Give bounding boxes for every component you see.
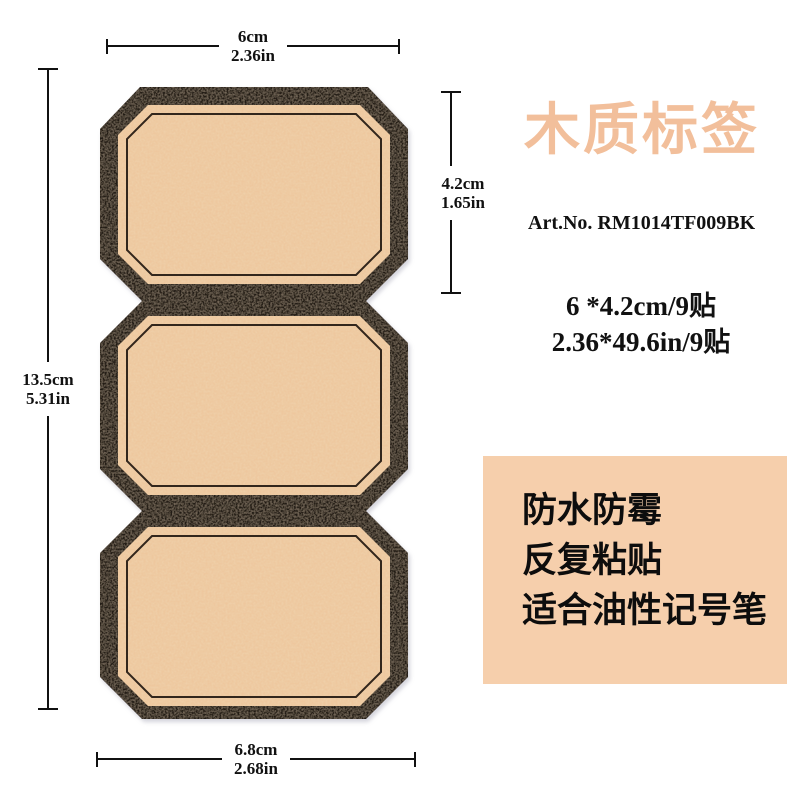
dimension-line [47, 416, 49, 708]
label-3-cork-face [118, 527, 390, 706]
dimension-line [47, 70, 49, 362]
dimension-right-cm: 4.2cm [441, 174, 485, 193]
feature-waterproof: 防水防霉 [522, 486, 787, 536]
dimension-bottom-in: 2.68in [234, 759, 278, 778]
feature-box: 防水防霉 反复粘贴 适合油性记号笔 [483, 456, 787, 684]
dimension-line [98, 758, 222, 760]
dimension-left-cm: 13.5cm [22, 370, 73, 389]
dimension-top-width: 6cm 2.36in [106, 26, 400, 66]
dimension-end-tick [441, 292, 461, 294]
size-spec-cm: 6 *4.2cm/9贴 [510, 288, 772, 324]
dimension-line [450, 93, 452, 166]
dimension-end-tick [414, 752, 416, 767]
dimension-line [450, 220, 452, 293]
dimension-right-label: 4.2cm 1.65in [441, 174, 485, 212]
dimension-right-height: 4.2cm 1.65in [421, 91, 481, 294]
dimension-bottom-cm: 6.8cm [234, 740, 278, 759]
cork-label-sheet-image [98, 87, 410, 720]
dimension-end-tick [398, 39, 400, 54]
article-number: Art.No. RM1014TF009BK [528, 212, 758, 235]
label-2-cork-face [118, 316, 390, 495]
dimension-left-in: 5.31in [22, 389, 73, 408]
dimension-top-label: 6cm 2.36in [231, 27, 275, 65]
feature-marker-compatible: 适合油性记号笔 [522, 586, 787, 636]
dimension-left-height: 13.5cm 5.31in [19, 68, 77, 710]
dimension-right-in: 1.65in [441, 193, 485, 212]
dimension-bottom-label: 6.8cm 2.68in [234, 740, 278, 778]
size-specs: 6 *4.2cm/9贴 2.36*49.6in/9贴 [510, 288, 772, 360]
dimension-line [108, 45, 219, 47]
dimension-bottom-width: 6.8cm 2.68in [96, 739, 416, 779]
product-title: 木质标签 [524, 100, 774, 162]
dimension-top-cm: 6cm [231, 27, 275, 46]
dimension-line [290, 758, 414, 760]
dimension-line [287, 45, 398, 47]
label-1-cork-face [118, 105, 390, 284]
size-spec-in: 2.36*49.6in/9贴 [510, 324, 772, 360]
dimension-end-tick [38, 708, 58, 710]
dimension-top-in: 2.36in [231, 46, 275, 65]
feature-reusable: 反复粘贴 [522, 536, 787, 586]
dimension-left-label: 13.5cm 5.31in [22, 370, 73, 408]
